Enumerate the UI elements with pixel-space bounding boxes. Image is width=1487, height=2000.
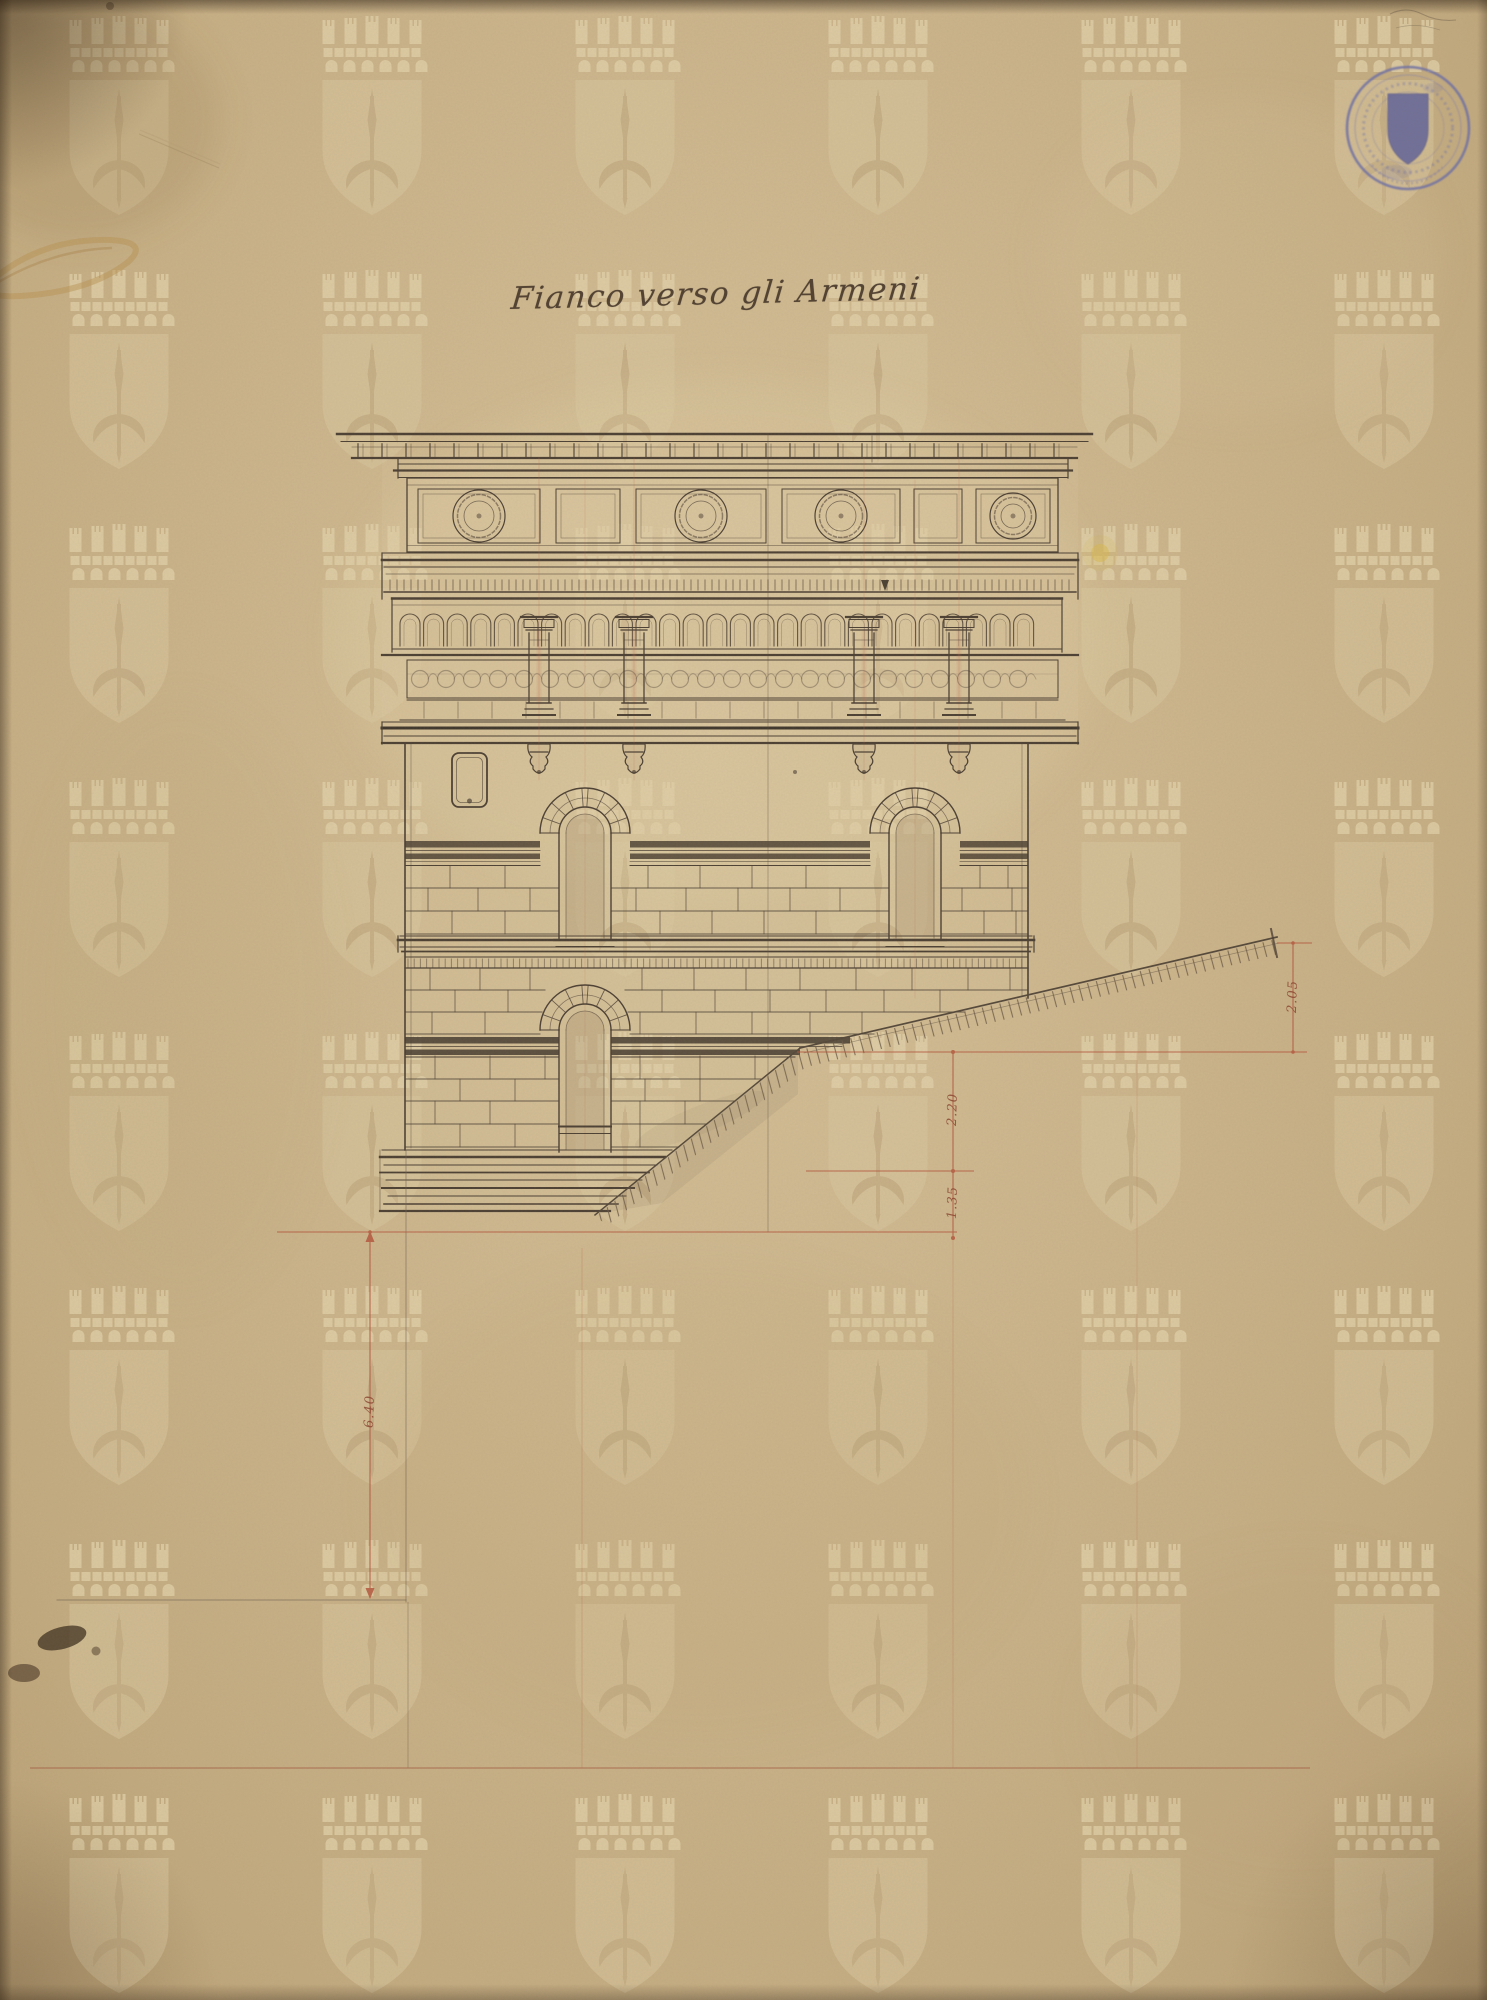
dimension-label: 1.35 [945,1179,962,1225]
dimension-label: 6.40 [362,1388,379,1434]
dimension-label: 2.20 [945,1086,962,1132]
dimension-label: 2.05 [1285,973,1302,1019]
scanned-sheet: { "sheet": { "title": "Fianco verso gli … [0,0,1487,2000]
